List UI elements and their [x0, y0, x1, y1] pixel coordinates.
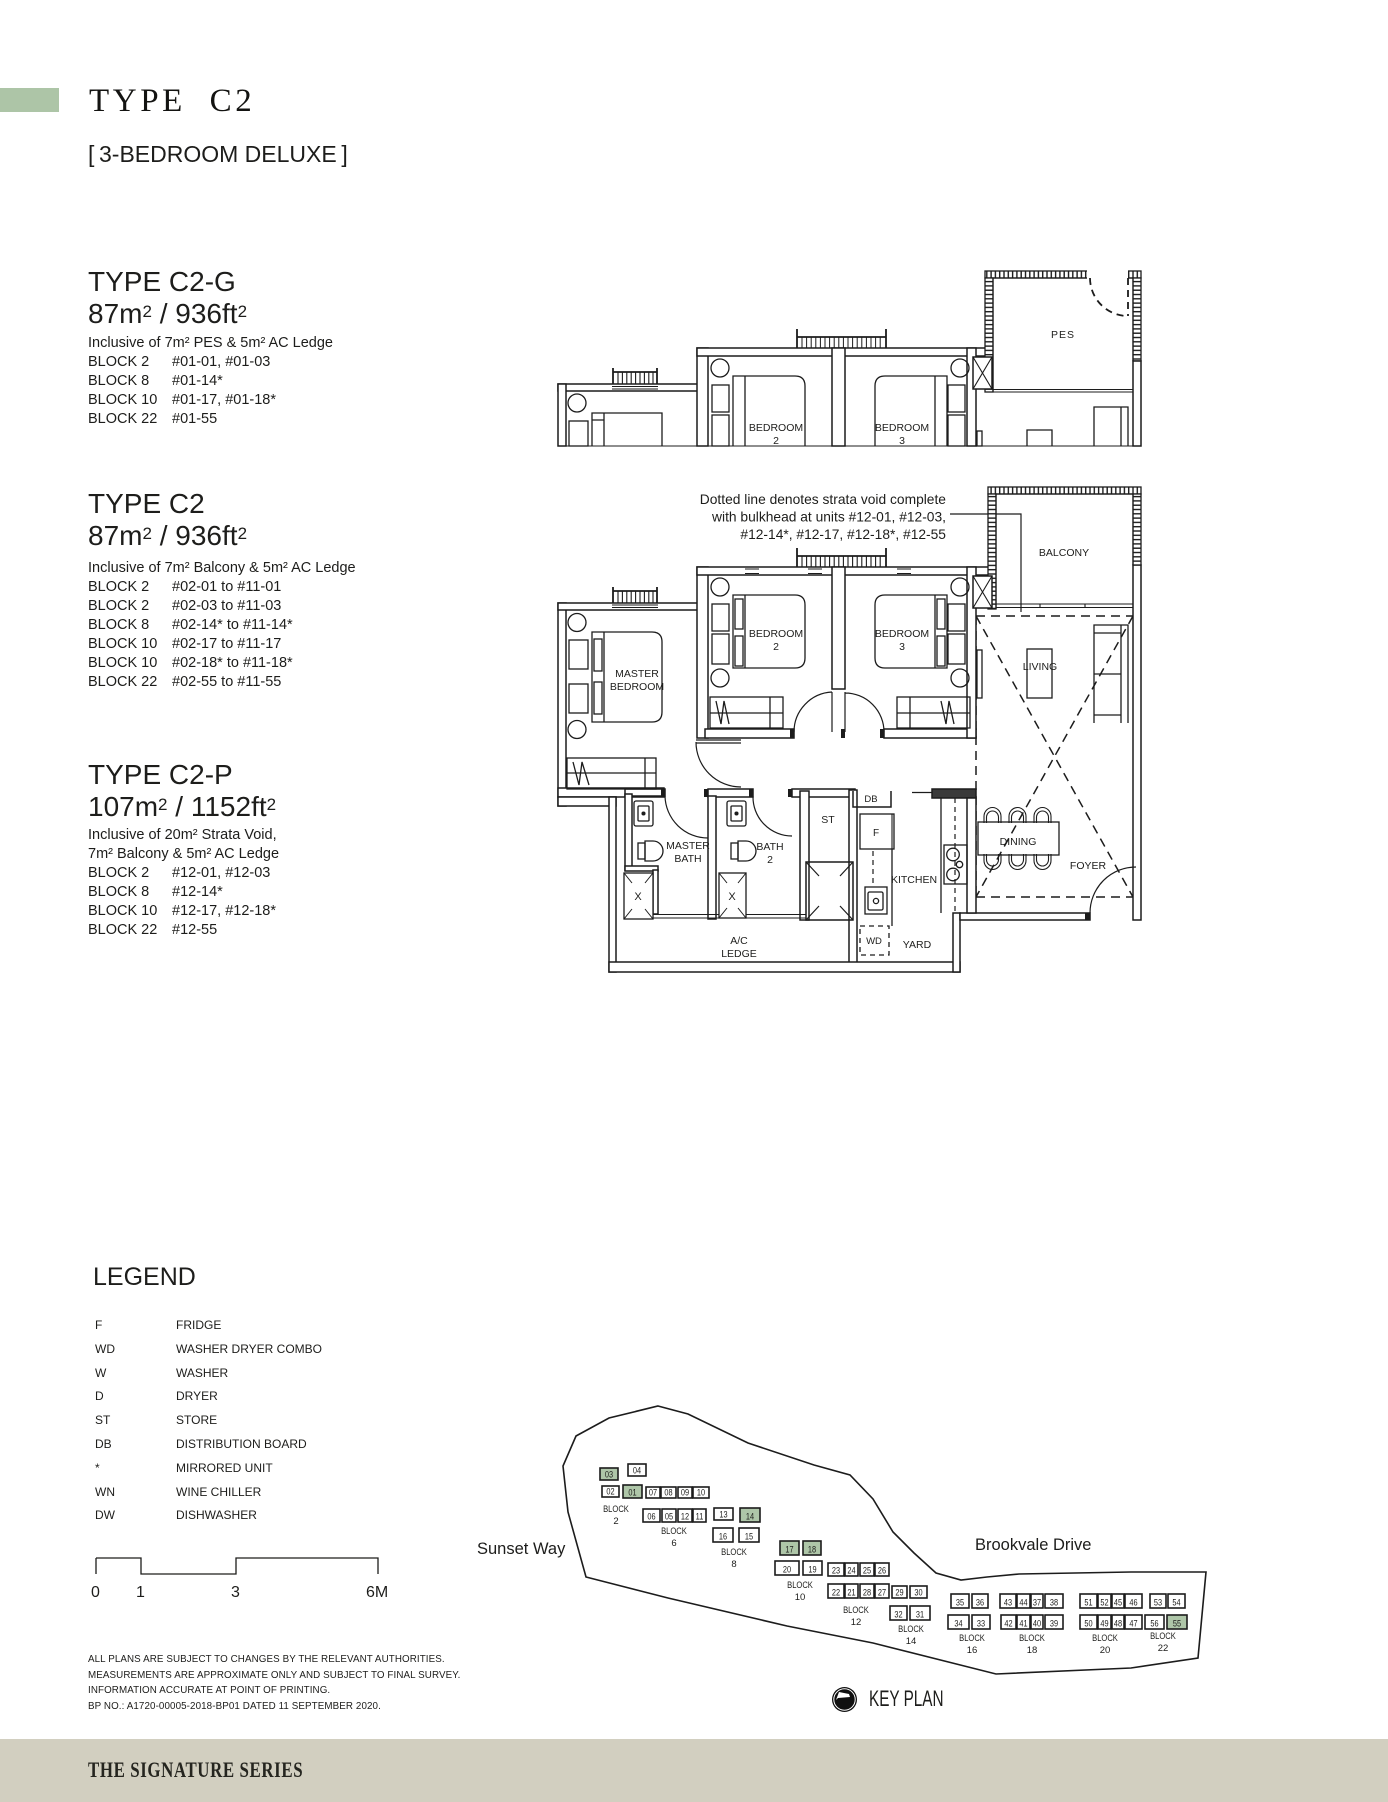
svg-text:2: 2 — [613, 1516, 618, 1527]
svg-text:8: 8 — [731, 1559, 736, 1570]
svg-text:2: 2 — [773, 641, 779, 653]
svg-text:BLOCK: BLOCK — [843, 1604, 869, 1615]
svg-text:07: 07 — [649, 1488, 658, 1498]
svg-text:19: 19 — [808, 1565, 817, 1575]
svg-text:KITCHEN: KITCHEN — [891, 874, 937, 886]
svg-text:37: 37 — [1033, 1598, 1042, 1608]
svg-text:F: F — [873, 828, 879, 839]
svg-text:MASTER: MASTER — [666, 840, 710, 852]
svg-text:BALCONY: BALCONY — [1039, 547, 1089, 559]
svg-text:38: 38 — [1050, 1598, 1059, 1608]
svg-text:22: 22 — [832, 1588, 841, 1598]
svg-text:10: 10 — [697, 1488, 706, 1498]
svg-text:BEDROOM: BEDROOM — [875, 628, 929, 640]
svg-text:35: 35 — [956, 1598, 965, 1608]
svg-text:06: 06 — [647, 1512, 656, 1522]
svg-text:17: 17 — [785, 1545, 794, 1555]
svg-text:20: 20 — [783, 1565, 792, 1575]
svg-text:21: 21 — [847, 1588, 856, 1598]
svg-text:31: 31 — [916, 1610, 925, 1620]
svg-text:BLOCK: BLOCK — [721, 1546, 747, 1557]
svg-text:05: 05 — [665, 1512, 674, 1522]
svg-text:with bulkhead at units #12-01,: with bulkhead at units #12-01, #12-03, — [711, 510, 946, 525]
svg-text:A/C: A/C — [730, 935, 748, 947]
svg-text:BLOCK: BLOCK — [661, 1525, 687, 1536]
svg-text:36: 36 — [976, 1598, 985, 1608]
svg-text:42: 42 — [1004, 1619, 1013, 1629]
svg-text:PES: PES — [1051, 329, 1075, 341]
svg-text:Sunset Way: Sunset Way — [477, 1540, 566, 1558]
svg-text:6: 6 — [671, 1538, 676, 1549]
svg-text:1: 1 — [136, 1584, 145, 1601]
svg-text:29: 29 — [895, 1588, 904, 1598]
svg-text:02: 02 — [606, 1487, 615, 1497]
svg-text:X: X — [728, 891, 736, 903]
svg-text:12: 12 — [681, 1512, 690, 1522]
svg-text:34: 34 — [954, 1619, 963, 1629]
svg-text:16: 16 — [719, 1532, 728, 1542]
svg-text:BLOCK: BLOCK — [1150, 1630, 1176, 1641]
svg-text:01: 01 — [628, 1488, 637, 1498]
svg-text:BEDROOM: BEDROOM — [875, 422, 929, 434]
svg-text:39: 39 — [1050, 1619, 1059, 1629]
svg-text:YARD: YARD — [903, 939, 932, 951]
svg-text:15: 15 — [745, 1532, 754, 1542]
svg-text:40: 40 — [1033, 1619, 1042, 1629]
svg-text:3: 3 — [231, 1584, 240, 1601]
svg-text:08: 08 — [664, 1488, 673, 1498]
svg-text:26: 26 — [878, 1566, 887, 1576]
svg-text:12: 12 — [851, 1617, 862, 1628]
svg-text:#12-14*, #12-17, #12-18*, #12-: #12-14*, #12-17, #12-18*, #12-55 — [740, 527, 946, 542]
svg-text:BLOCK: BLOCK — [1019, 1632, 1045, 1643]
svg-text:BLOCK: BLOCK — [1092, 1632, 1118, 1643]
svg-text:14: 14 — [906, 1636, 917, 1647]
svg-text:43: 43 — [1004, 1598, 1013, 1608]
svg-text:09: 09 — [681, 1488, 690, 1498]
svg-text:24: 24 — [847, 1566, 856, 1576]
svg-text:BEDROOM: BEDROOM — [610, 681, 664, 693]
svg-text:BATH: BATH — [674, 853, 701, 865]
svg-text:X: X — [634, 891, 642, 903]
svg-text:WD: WD — [866, 936, 882, 947]
svg-text:18: 18 — [808, 1545, 817, 1555]
svg-text:03: 03 — [605, 1470, 614, 1480]
svg-text:3: 3 — [899, 641, 905, 653]
svg-text:23: 23 — [832, 1566, 841, 1576]
svg-text:3: 3 — [899, 435, 905, 447]
svg-text:DB: DB — [864, 794, 877, 805]
svg-text:33: 33 — [977, 1619, 986, 1629]
svg-text:44: 44 — [1019, 1598, 1028, 1608]
svg-text:54: 54 — [1172, 1598, 1181, 1608]
svg-text:LEDGE: LEDGE — [721, 948, 757, 960]
svg-text:ST: ST — [821, 814, 835, 826]
svg-text:6M: 6M — [366, 1584, 388, 1601]
svg-text:16: 16 — [967, 1645, 978, 1656]
svg-text:52: 52 — [1100, 1598, 1109, 1608]
svg-text:28: 28 — [863, 1588, 872, 1598]
svg-text:49: 49 — [1100, 1619, 1109, 1629]
svg-text:30: 30 — [914, 1588, 923, 1598]
svg-text:14: 14 — [746, 1512, 755, 1522]
svg-text:Brookvale Drive: Brookvale Drive — [975, 1536, 1091, 1554]
svg-text:BEDROOM: BEDROOM — [749, 422, 803, 434]
svg-text:2: 2 — [773, 435, 779, 447]
svg-text:11: 11 — [696, 1512, 704, 1522]
svg-text:DINING: DINING — [1000, 836, 1037, 848]
svg-text:2: 2 — [767, 854, 773, 866]
svg-text:47: 47 — [1129, 1619, 1138, 1629]
svg-text:BATH: BATH — [756, 841, 783, 853]
svg-text:18: 18 — [1027, 1645, 1038, 1656]
svg-text:27: 27 — [878, 1588, 887, 1598]
svg-text:46: 46 — [1129, 1598, 1138, 1608]
svg-text:MASTER: MASTER — [615, 668, 659, 680]
svg-text:FOYER: FOYER — [1070, 860, 1107, 872]
svg-text:BLOCK: BLOCK — [959, 1632, 985, 1643]
svg-text:13: 13 — [719, 1510, 728, 1520]
svg-text:25: 25 — [863, 1566, 872, 1576]
svg-text:48: 48 — [1114, 1619, 1123, 1629]
svg-text:50: 50 — [1084, 1619, 1093, 1629]
svg-text:22: 22 — [1158, 1643, 1169, 1654]
svg-text:45: 45 — [1114, 1598, 1123, 1608]
svg-text:04: 04 — [633, 1466, 642, 1476]
svg-text:32: 32 — [894, 1610, 903, 1620]
svg-text:53: 53 — [1154, 1598, 1163, 1608]
svg-text:LIVING: LIVING — [1023, 661, 1057, 673]
svg-text:BLOCK: BLOCK — [898, 1623, 924, 1634]
svg-text:41: 41 — [1019, 1619, 1028, 1629]
svg-text:BLOCK: BLOCK — [787, 1579, 813, 1590]
svg-text:BLOCK: BLOCK — [603, 1503, 629, 1514]
svg-text:56: 56 — [1150, 1619, 1159, 1629]
svg-text:10: 10 — [795, 1592, 806, 1603]
svg-text:51: 51 — [1084, 1598, 1093, 1608]
svg-text:0: 0 — [91, 1584, 100, 1601]
svg-text:Dotted line denotes strata voi: Dotted line denotes strata void complete — [700, 492, 947, 507]
svg-text:55: 55 — [1173, 1619, 1182, 1629]
svg-text:BEDROOM: BEDROOM — [749, 628, 803, 640]
svg-text:20: 20 — [1100, 1645, 1111, 1656]
